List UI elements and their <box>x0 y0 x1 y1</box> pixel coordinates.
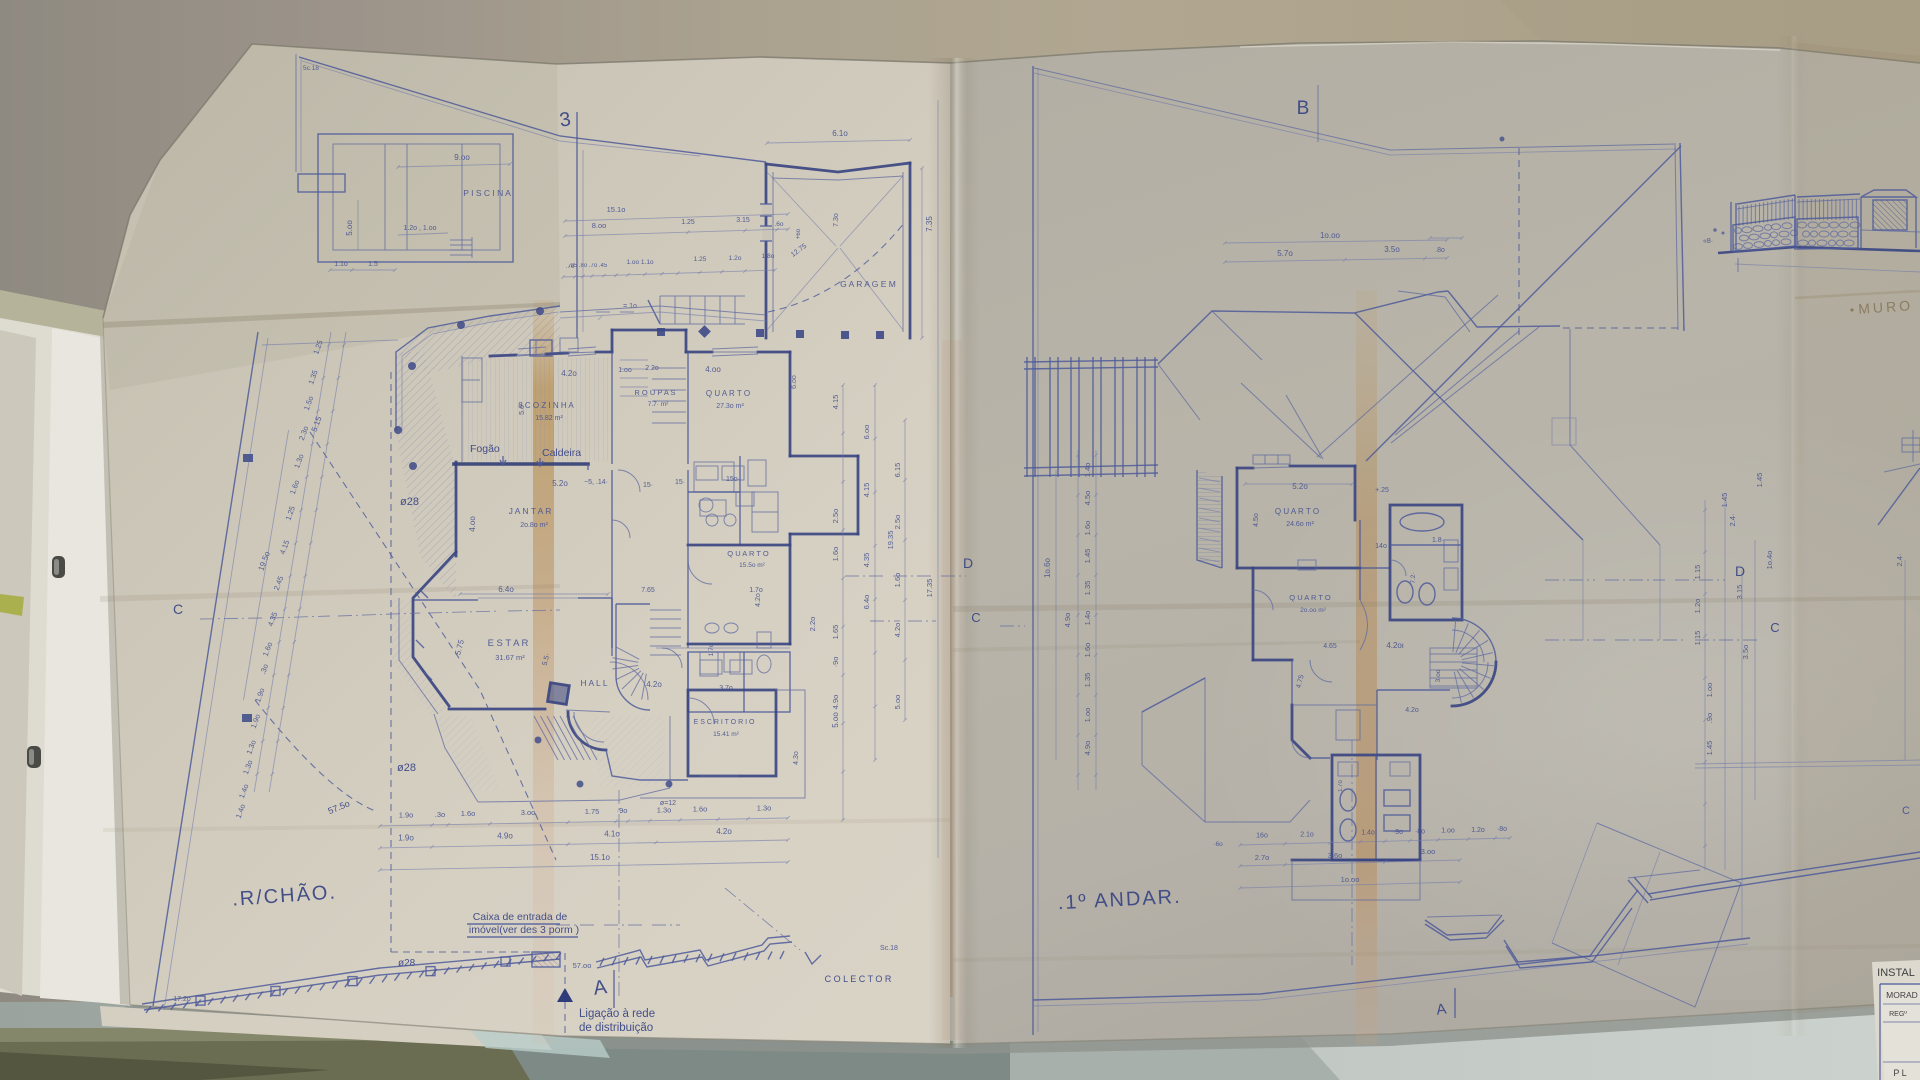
svg-text:1.35: 1.35 <box>1083 581 1092 596</box>
svg-text:1.7o: 1.7o <box>1338 780 1344 792</box>
svg-text:C: C <box>1902 805 1910 817</box>
svg-text:1.15: 1.15 <box>1693 631 1702 646</box>
svg-text:4.oo: 4.oo <box>468 516 477 532</box>
svg-text:4.9o: 4.9o <box>1083 741 1092 756</box>
svg-text:1.4o: 1.4o <box>1083 611 1092 626</box>
svg-text:1.15: 1.15 <box>1693 565 1702 580</box>
svg-text:1.3o: 1.3o <box>657 805 672 814</box>
svg-text:1.6o: 1.6o <box>893 573 902 588</box>
svg-text:E S C R I T O R I O: E S C R I T O R I O <box>694 719 755 726</box>
svg-text:2o.8o m²: 2o.8o m² <box>520 522 548 529</box>
svg-text:.3o: .3o <box>435 810 445 819</box>
svg-text:4.1o: 4.1o <box>604 829 620 838</box>
svg-text:1.6o: 1.6o <box>1083 643 1092 658</box>
svg-text:15.41 m²: 15.41 m² <box>713 731 739 738</box>
svg-text:·8o: ·8o <box>1415 828 1425 835</box>
svg-text:5.7o: 5.7o <box>1277 249 1293 258</box>
svg-text:1.oo: 1.oo <box>1083 708 1092 723</box>
svg-text:1.oo: 1.oo <box>1705 683 1714 698</box>
svg-text:−5, .14·: −5, .14· <box>584 479 608 486</box>
svg-text:5.oo: 5.oo <box>345 220 354 236</box>
svg-text:D: D <box>963 555 973 571</box>
svg-text:4.5o: 4.5o <box>1253 513 1260 527</box>
svg-text:4.9o: 4.9o <box>1063 613 1072 628</box>
svg-text:Fogão: Fogão <box>470 443 500 455</box>
svg-text:ø28: ø28 <box>398 958 416 969</box>
svg-text:1.6o: 1.6o <box>461 809 476 818</box>
svg-text:1.7o: 1.7o <box>708 643 715 656</box>
svg-text:·6o: ·6o <box>1213 841 1223 848</box>
svg-text:4.15: 4.15 <box>862 483 871 498</box>
svg-text:6.oo: 6.oo <box>862 425 871 440</box>
svg-text:Q U A R T O: Q U A R T O <box>706 389 750 398</box>
svg-text:Caldeira: Caldeira <box>542 447 581 459</box>
svg-text:1.65: 1.65 <box>831 625 840 640</box>
svg-text:1.2o: 1.2o <box>1471 827 1485 834</box>
svg-text:C: C <box>971 610 980 625</box>
svg-text:INSTAL: INSTAL <box>1877 967 1915 979</box>
svg-text:J A N T A R: J A N T A R <box>509 506 552 516</box>
svg-text:1.8o: 1.8o <box>762 253 775 260</box>
svg-text:.6o: .6o <box>774 221 783 228</box>
svg-text:1.6o: 1.6o <box>831 547 840 562</box>
svg-text:27.3o m²: 27.3o m² <box>716 403 744 410</box>
svg-text:4.35: 4.35 <box>862 553 871 568</box>
svg-text:7.3o: 7.3o <box>833 213 840 227</box>
svg-text:8 C O Z I N H A: 8 C O Z I N H A <box>518 401 574 410</box>
svg-text:·9o: ·9o <box>617 806 628 815</box>
svg-text:1.45: 1.45 <box>1755 473 1764 488</box>
svg-text:1o.oo: 1o.oo <box>1341 875 1360 884</box>
svg-text:·9o: ·9o <box>831 657 840 668</box>
svg-text:Sc.18: Sc.18 <box>880 945 898 952</box>
svg-text:5c.18: 5c.18 <box>303 65 319 72</box>
svg-text:.8o: .8o <box>1435 247 1445 254</box>
svg-text:1.45: 1.45 <box>1705 741 1714 756</box>
svg-text:1.6o: 1.6o <box>693 805 708 814</box>
svg-text:ø28: ø28 <box>400 496 419 508</box>
svg-text:P L: P L <box>1893 1068 1906 1078</box>
svg-text:1.7o: 1.7o <box>749 587 763 594</box>
svg-text:·9o: ·9o <box>1393 829 1403 836</box>
svg-text:15.1o: 15.1o <box>607 205 626 214</box>
svg-text:P I S C I N A: P I S C I N A <box>463 188 511 198</box>
svg-text:4.15: 4.15 <box>831 395 840 410</box>
svg-text:4.5o: 4.5o <box>1083 491 1092 506</box>
svg-text:3.15: 3.15 <box>1735 585 1744 600</box>
svg-text:3.5o: 3.5o <box>1384 245 1400 254</box>
svg-text:19.35: 19.35 <box>886 531 895 550</box>
svg-text:D: D <box>1735 563 1745 579</box>
svg-text:1.4o: 1.4o <box>1361 830 1375 837</box>
svg-text:4.2o: 4.2o <box>646 680 662 689</box>
svg-text:57.oo: 57.oo <box>573 961 592 970</box>
svg-text:Q U A R T O: Q U A R T O <box>1289 593 1331 602</box>
svg-text:C: C <box>1770 620 1779 635</box>
svg-text:·8o: ·8o <box>1497 826 1507 833</box>
svg-text:4.2o: 4.2o <box>716 827 732 836</box>
svg-text:1.oo 1.1o: 1.oo 1.1o <box>626 259 653 266</box>
svg-text:Ligação à rede: Ligação à rede <box>579 1008 655 1020</box>
svg-text:1.2o , 1.oo: 1.2o , 1.oo <box>403 225 436 232</box>
svg-text:4.2o: 4.2o <box>893 623 902 638</box>
svg-text:5.2o: 5.2o <box>552 479 568 488</box>
svg-text:7.7· m²: 7.7· m² <box>648 401 669 408</box>
svg-text:15.5o m²: 15.5o m² <box>739 562 765 569</box>
svg-text:MORAD: MORAD <box>1886 990 1918 1000</box>
svg-text:3.6o: 3.6o <box>1328 851 1343 860</box>
svg-text:6.oo: 6.oo <box>791 375 798 389</box>
svg-text:4.9o: 4.9o <box>497 832 513 841</box>
svg-text:6.15: 6.15 <box>893 463 902 478</box>
svg-text:2.5o: 2.5o <box>893 515 902 530</box>
svg-text:2.4·: 2.4· <box>1728 514 1737 527</box>
svg-text:5.oo: 5.oo <box>831 712 840 728</box>
svg-text:6.4o: 6.4o <box>862 595 871 610</box>
svg-text:1.25: 1.25 <box>694 256 707 263</box>
svg-text:Q U A R T O: Q U A R T O <box>1275 507 1319 516</box>
svg-text:B: B <box>1297 98 1310 119</box>
svg-text:REGº: REGº <box>1889 1011 1907 1018</box>
svg-text:3.oo: 3.oo <box>1421 847 1436 856</box>
svg-text:16o: 16o <box>1256 832 1268 839</box>
svg-text:4.2o: 4.2o <box>561 369 577 378</box>
svg-text:1.1o: 1.1o <box>334 261 348 268</box>
svg-text:1.9o: 1.9o <box>399 810 414 819</box>
svg-text:17.2o: 17.2o <box>173 996 191 1003</box>
svg-text:.9o: .9o <box>1705 713 1714 723</box>
svg-text:1o.6o: 1o.6o <box>1043 557 1052 578</box>
svg-text:4.2o: 4.2o <box>1405 707 1419 714</box>
svg-text:1.45: 1.45 <box>1720 493 1729 508</box>
svg-text:3.15: 3.15 <box>736 217 750 224</box>
svg-text:1.3o: 1.3o <box>757 803 772 812</box>
svg-text:.95 .8o .7o .45: .95 .8o .7o .45 <box>569 263 608 269</box>
svg-text:G A R A G E M: G A R A G E M <box>840 279 896 289</box>
svg-text:5.oo: 5.oo <box>893 695 902 710</box>
svg-text:4.9o: 4.9o <box>831 695 840 710</box>
svg-text:7.2·: 7.2· <box>1410 572 1417 583</box>
svg-text:1.oo: 1.oo <box>618 367 632 374</box>
svg-text:5.2o: 5.2o <box>1292 482 1308 491</box>
svg-text:3.oo: 3.oo <box>521 808 536 817</box>
svg-text:15·: 15· <box>643 482 653 489</box>
svg-text:3.7o: 3.7o <box>719 685 733 692</box>
svg-text:1.2o: 1.2o <box>1693 599 1702 614</box>
svg-text:9.oo: 9.oo <box>454 153 470 162</box>
svg-text:7.65: 7.65 <box>641 587 655 594</box>
svg-text:14o: 14o <box>1375 543 1387 550</box>
svg-text:1o.4o: 1o.4o <box>1765 551 1774 570</box>
svg-text:C O L E C T O R: C O L E C T O R <box>825 974 892 984</box>
svg-text:2.1o: 2.1o <box>1300 831 1314 838</box>
svg-text:8.oo: 8.oo <box>592 221 607 230</box>
svg-text:«8·: «8· <box>1703 238 1713 245</box>
svg-text:de distribuição: de distribuição <box>579 1022 653 1034</box>
svg-text:2.2o: 2.2o <box>808 617 817 632</box>
svg-text:1.35: 1.35 <box>1083 673 1092 688</box>
svg-text:1.6o: 1.6o <box>1083 521 1092 536</box>
svg-text:15·: 15· <box>675 479 685 486</box>
svg-text:31.67 m²: 31.67 m² <box>495 653 525 662</box>
svg-text:1.8·: 1.8· <box>1432 537 1444 544</box>
svg-text:+.25: +.25 <box>1375 487 1389 494</box>
svg-text:3.oo: 3.oo <box>1435 669 1442 682</box>
svg-text:2.5o: 2.5o <box>831 509 840 524</box>
svg-text:E S T A R: E S T A R <box>488 638 529 649</box>
svg-text:6.1o: 6.1o <box>832 129 848 138</box>
svg-text:24.6o m²: 24.6o m² <box>1286 521 1314 528</box>
svg-text:1.25: 1.25 <box>681 219 695 226</box>
svg-text:4.2oι: 4.2oι <box>1386 641 1404 650</box>
svg-text:7.35: 7.35 <box>925 216 934 232</box>
svg-text:5.o: 5.o <box>519 405 526 415</box>
svg-text:C: C <box>173 601 183 617</box>
svg-text:4.65: 4.65 <box>1323 643 1337 650</box>
svg-text:imóvel(ver des 3 porm ): imóvel(ver des 3 porm ) <box>469 924 579 936</box>
svg-text:ø28: ø28 <box>397 762 416 774</box>
svg-text:1.45: 1.45 <box>1083 549 1092 564</box>
svg-text:Caixa de entrada de: Caixa de entrada de <box>473 911 568 923</box>
svg-text:1.2o: 1.2o <box>729 255 742 262</box>
svg-text:15.1o: 15.1o <box>590 853 611 862</box>
svg-text:4.3o: 4.3o <box>793 751 800 765</box>
svg-text:2.4·: 2.4· <box>1895 554 1904 567</box>
svg-text:1.4o: 1.4o <box>1083 463 1092 478</box>
svg-text:2.7o: 2.7o <box>1255 853 1270 862</box>
svg-text:1.5: 1.5 <box>368 261 378 268</box>
svg-text:Q U A R T O: Q U A R T O <box>727 549 769 558</box>
svg-text:6.4o: 6.4o <box>498 585 514 594</box>
svg-text:H A L L: H A L L <box>580 678 607 688</box>
svg-text:15.82 m²: 15.82 m² <box>535 415 563 422</box>
svg-text:+6o: +6o <box>796 228 802 239</box>
svg-text:17.35: 17.35 <box>925 579 934 598</box>
svg-text:2o.oo m²: 2o.oo m² <box>1300 607 1326 614</box>
svg-text:=.1o: =.1o <box>623 303 637 310</box>
svg-text:1.9o: 1.9o <box>398 833 414 842</box>
svg-text:4.2o: 4.2o <box>755 593 762 607</box>
svg-text:4.oo: 4.oo <box>705 365 721 374</box>
svg-text:1o.oo: 1o.oo <box>1320 231 1341 240</box>
svg-text:1.oo: 1.oo <box>1441 828 1455 835</box>
svg-text:1.75: 1.75 <box>585 807 600 816</box>
